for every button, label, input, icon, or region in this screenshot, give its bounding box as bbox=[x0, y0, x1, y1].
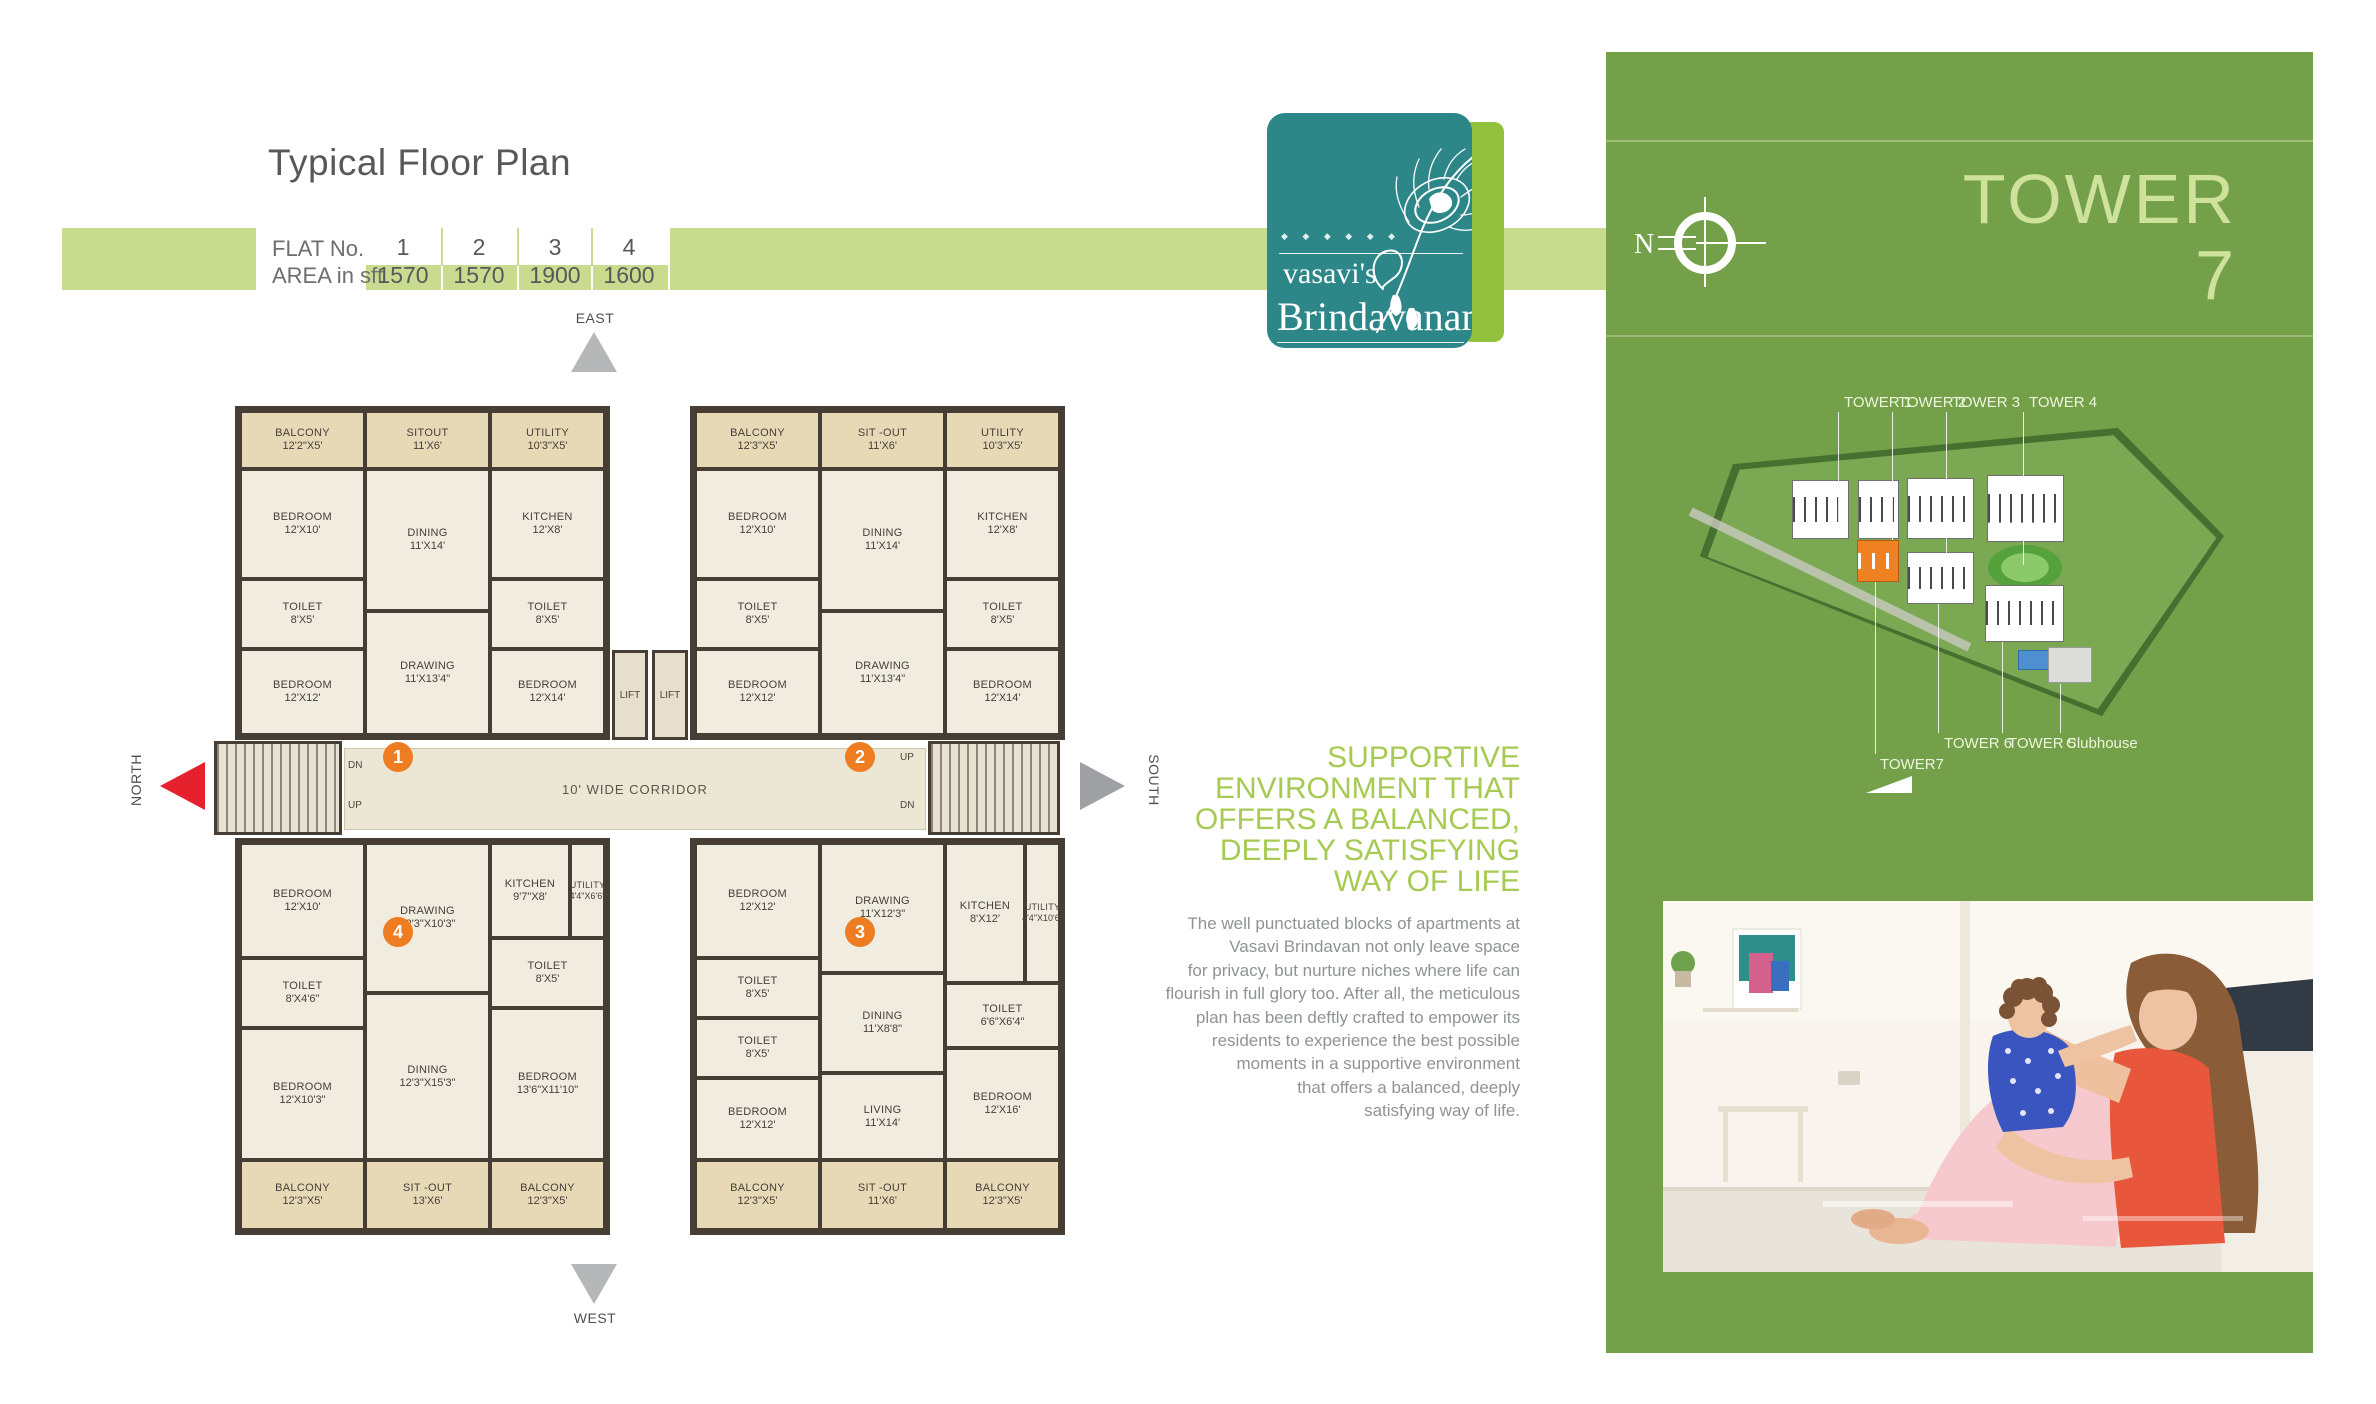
body-line: Vasavi Brindavan not only leave space bbox=[1100, 935, 1520, 958]
room-name: KITCHEN bbox=[960, 900, 1010, 913]
room-dims: 11'X6' bbox=[868, 1195, 897, 1208]
marker-number: 2 bbox=[855, 747, 865, 768]
room-name: BEDROOM bbox=[973, 1091, 1032, 1104]
headline-line: DEEPLY SATISFYING bbox=[1120, 835, 1520, 866]
room-dims: 12'3"X5' bbox=[738, 1195, 778, 1208]
tower-4-building bbox=[1987, 475, 2064, 542]
room-utility: UTILITY10'3"X5' bbox=[945, 411, 1060, 469]
room-dims: 12'X10' bbox=[284, 901, 320, 914]
room-bedroom: BEDROOM13'6"X11'10" bbox=[490, 1008, 605, 1160]
room-dims: 8'X5' bbox=[991, 614, 1015, 627]
room-bedroom: BEDROOM12'X10' bbox=[240, 843, 365, 958]
room-dims: 12'X10'3" bbox=[279, 1094, 325, 1107]
room-bedroom: BEDROOM12'X10' bbox=[695, 469, 820, 579]
room-bedroom: BEDROOM12'X10'3" bbox=[240, 1028, 365, 1160]
tower-number: 7 bbox=[2195, 240, 2237, 310]
stair-dn-label: DN bbox=[348, 760, 362, 771]
leader-line bbox=[1892, 412, 1893, 540]
room-dining: DINING11'X14' bbox=[365, 469, 490, 611]
body-line: for privacy, but nurture niches where li… bbox=[1100, 959, 1520, 982]
room-name: LIVING bbox=[864, 1104, 902, 1117]
marker-number: 1 bbox=[393, 747, 403, 768]
room-dims: 11'X14' bbox=[410, 540, 445, 553]
room-drawing: DRAWING12'3"X10'3" bbox=[365, 843, 490, 993]
room-dims: 11'X13'4" bbox=[405, 673, 450, 686]
room-balcony: BALCONY12'2"X5' bbox=[240, 411, 365, 469]
north-arrow-icon bbox=[160, 762, 205, 810]
flat-no-cell: 3 bbox=[518, 234, 592, 261]
room-dims: 12'X8' bbox=[533, 524, 563, 537]
room-name: UTILITY bbox=[526, 427, 569, 440]
room-toilet: TOILET6'6"X6'4" bbox=[945, 983, 1060, 1048]
leader-line bbox=[1838, 412, 1839, 530]
room-name: BEDROOM bbox=[728, 511, 787, 524]
room-name: KITCHEN bbox=[505, 878, 555, 891]
room-name: DINING bbox=[862, 527, 902, 540]
room-dims: 12'X12' bbox=[739, 692, 775, 705]
room-sitout: SIT -OUT13'X6' bbox=[365, 1160, 490, 1230]
north-compass-icon: N bbox=[1626, 187, 1796, 302]
room-bedroom: BEDROOM12'X12' bbox=[695, 843, 820, 958]
body-line: residents to experience the best possibl… bbox=[1100, 1029, 1520, 1052]
room-dims: 11'X8'8" bbox=[863, 1023, 902, 1036]
brand-logo: ◆ ◆ ◆ ◆ ◆ ◆ vasavi's Brindavanam bbox=[1267, 113, 1472, 348]
leader-line bbox=[1938, 604, 1939, 733]
room-name: TOILET bbox=[527, 601, 567, 614]
room-name: UTILITY bbox=[981, 427, 1024, 440]
room-name: BALCONY bbox=[520, 1182, 575, 1195]
room-name: DINING bbox=[862, 1010, 902, 1023]
logo-underline bbox=[1277, 342, 1464, 343]
room-sitout: SITOUT11'X6' bbox=[365, 411, 490, 469]
leader-line bbox=[2002, 642, 2003, 733]
tower-title: TOWER bbox=[1963, 164, 2237, 234]
room-dims: 12'X10' bbox=[284, 524, 320, 537]
room-dims: 13'X6' bbox=[413, 1195, 443, 1208]
room-dining: DINING11'X14' bbox=[820, 469, 945, 611]
room-dims: 8'X5' bbox=[746, 1048, 770, 1061]
flat-area-cell: 1600 bbox=[592, 262, 666, 289]
room-dims: 12'X16' bbox=[984, 1104, 1020, 1117]
room-bedroom: BEDROOM12'X12' bbox=[240, 649, 365, 735]
headline-line: OFFERS A BALANCED, bbox=[1120, 804, 1520, 835]
room-toilet: TOILET8'X5' bbox=[945, 579, 1060, 649]
room-dims: 8'X5' bbox=[291, 614, 315, 627]
room-dims: 4'4"X10'6" bbox=[1022, 913, 1063, 924]
room-toilet: TOILET8'X5' bbox=[695, 579, 820, 649]
room-drawing: DRAWING11'X13'4" bbox=[820, 611, 945, 735]
room-balcony: BALCONY12'3"X5' bbox=[695, 1160, 820, 1230]
room-name: DRAWING bbox=[400, 660, 455, 673]
brochure-page: Typical Floor Plan FLAT No. AREA in sft … bbox=[0, 0, 2376, 1404]
room-dims: 12'X10' bbox=[739, 524, 775, 537]
flat-marker-3: 3 bbox=[845, 917, 875, 947]
room-name: SITOUT bbox=[407, 427, 449, 440]
logo-ornament: ◆ ◆ ◆ ◆ ◆ ◆ bbox=[1281, 231, 1401, 242]
brand-name-top: vasavi's bbox=[1283, 257, 1377, 291]
room-dims: 12'X12' bbox=[739, 901, 775, 914]
south-arrow-icon bbox=[1080, 762, 1125, 810]
section-headline: SUPPORTIVE ENVIRONMENT THAT OFFERS A BAL… bbox=[1120, 742, 1520, 897]
room-kitchen: KITCHEN9'7"X8' bbox=[490, 843, 570, 938]
leader-line bbox=[2023, 412, 2024, 565]
room-dims: 9'7"X8' bbox=[513, 891, 547, 904]
leader-line bbox=[1875, 582, 1876, 754]
body-line: The well punctuated blocks of apartments… bbox=[1100, 912, 1520, 935]
room-toilet: TOILET8'X5' bbox=[695, 1018, 820, 1078]
room-name: SIT -OUT bbox=[403, 1182, 452, 1195]
room-name: BEDROOM bbox=[728, 679, 787, 692]
room-dims: 8'X4'6" bbox=[286, 993, 320, 1006]
room-name: SIT -OUT bbox=[858, 1182, 907, 1195]
room-name: BALCONY bbox=[730, 427, 785, 440]
room-dims: 12'X12' bbox=[739, 1119, 775, 1132]
logo-divider bbox=[1279, 253, 1463, 254]
room-balcony: BALCONY12'3"X5' bbox=[490, 1160, 605, 1230]
room-name: TOILET bbox=[982, 601, 1022, 614]
west-label: WEST bbox=[560, 1310, 630, 1326]
room-name: BEDROOM bbox=[728, 1106, 787, 1119]
room-sitout: SIT -OUT11'X6' bbox=[820, 1160, 945, 1230]
room-dims: 12'2"X5' bbox=[283, 440, 323, 453]
tower-6-building bbox=[1907, 552, 1974, 604]
flat-2-plan: BALCONY12'3"X5' SIT -OUT11'X6' UTILITY10… bbox=[690, 406, 1065, 740]
room-toilet: TOILET8'X5' bbox=[240, 579, 365, 649]
clubhouse-building bbox=[2048, 647, 2092, 683]
room-name: BEDROOM bbox=[518, 1071, 577, 1084]
site-label-clubhouse: Clubhouse bbox=[2066, 735, 2138, 752]
room-bedroom: BEDROOM12'X10' bbox=[240, 469, 365, 579]
room-dims: 11'X14' bbox=[865, 540, 900, 553]
room-name: DRAWING bbox=[400, 905, 455, 918]
body-line: plan has been deftly crafted to empower … bbox=[1100, 1006, 1520, 1029]
room-dims: 11'X6' bbox=[868, 440, 897, 453]
room-name: BEDROOM bbox=[273, 679, 332, 692]
room-balcony: BALCONY12'3"X5' bbox=[945, 1160, 1060, 1230]
lifestyle-photo bbox=[1663, 901, 2313, 1272]
flat-marker-4: 4 bbox=[383, 917, 413, 947]
tower-1-building bbox=[1792, 480, 1849, 539]
room-dims: 8'X5' bbox=[536, 973, 560, 986]
room-toilet: TOILET8'X5' bbox=[695, 958, 820, 1018]
site-label-tower-7: TOWER7 bbox=[1880, 756, 1944, 773]
lift-block: LIFT LIFT bbox=[612, 650, 688, 740]
room-dims: 12'3"X5' bbox=[283, 1195, 323, 1208]
room-bedroom: BEDROOM12'X12' bbox=[695, 1078, 820, 1160]
room-name: DRAWING bbox=[855, 660, 910, 673]
leader-line bbox=[2060, 684, 2061, 733]
marker-number: 4 bbox=[393, 922, 403, 943]
room-dims: 12'X14' bbox=[529, 692, 565, 705]
room-dining: DINING12'3"X15'3" bbox=[365, 993, 490, 1160]
room-name: DRAWING bbox=[855, 895, 910, 908]
room-bedroom: BEDROOM12'X12' bbox=[695, 649, 820, 735]
room-name: TOILET bbox=[737, 975, 777, 988]
room-dims: 8'X12' bbox=[970, 913, 1000, 926]
stairs-right bbox=[928, 741, 1060, 835]
headline-line: WAY OF LIFE bbox=[1120, 866, 1520, 897]
room-name: BEDROOM bbox=[273, 511, 332, 524]
room-name: DINING bbox=[407, 1064, 447, 1077]
site-plan bbox=[1690, 415, 2240, 730]
stair-up-label: UP bbox=[900, 752, 914, 763]
room-bedroom: BEDROOM12'X14' bbox=[945, 649, 1060, 735]
room-kitchen: KITCHEN12'X8' bbox=[490, 469, 605, 579]
room-name: BEDROOM bbox=[518, 679, 577, 692]
room-dims: 11'X6' bbox=[413, 440, 442, 453]
flat-area-cell: 1570 bbox=[366, 262, 440, 289]
room-dims: 11'X13'4" bbox=[860, 673, 905, 686]
corridor: 10' WIDE CORRIDOR bbox=[344, 748, 926, 830]
room-kitchen: KITCHEN8'X12' bbox=[945, 843, 1025, 983]
room-name: TOILET bbox=[527, 960, 567, 973]
east-label: EAST bbox=[560, 310, 630, 326]
room-dims: 4'4"X6'6" bbox=[570, 891, 606, 902]
body-line: flourish in full glory too. After all, t… bbox=[1100, 982, 1520, 1005]
body-line: satisfying way of life. bbox=[1100, 1099, 1520, 1122]
room-drawing: DRAWING11'X13'4" bbox=[365, 611, 490, 735]
body-line: moments in a supportive environment bbox=[1100, 1052, 1520, 1075]
room-name: DINING bbox=[407, 527, 447, 540]
central-lawn bbox=[1988, 545, 2062, 590]
tower-3-building bbox=[1907, 478, 1974, 539]
south-label: SOUTH bbox=[1146, 754, 1162, 806]
room-name: TOILET bbox=[282, 601, 322, 614]
room-dims: 8'X5' bbox=[746, 614, 770, 627]
stair-dn-label: DN bbox=[900, 800, 914, 811]
flat-area-cell: 1570 bbox=[442, 262, 516, 289]
tower-7-building-highlight bbox=[1857, 540, 1899, 582]
room-name: BALCONY bbox=[275, 1182, 330, 1195]
room-toilet: TOILET8'X5' bbox=[490, 579, 605, 649]
headline-line: SUPPORTIVE bbox=[1120, 742, 1520, 773]
room-dims: 12'3"X15'3" bbox=[399, 1077, 455, 1090]
stairs-left bbox=[214, 741, 342, 835]
room-dims: 12'X8' bbox=[988, 524, 1018, 537]
room-dims: 11'X14' bbox=[865, 1117, 900, 1130]
room-name: UTILITY bbox=[570, 880, 606, 891]
flat-marker-1: 1 bbox=[383, 742, 413, 772]
room-name: TOILET bbox=[282, 980, 322, 993]
room-dims: 12'3"X5' bbox=[528, 1195, 568, 1208]
section-body: The well punctuated blocks of apartments… bbox=[1100, 912, 1520, 1123]
room-name: BEDROOM bbox=[273, 888, 332, 901]
room-dims: 12'X12' bbox=[284, 692, 320, 705]
room-balcony: BALCONY12'3"X5' bbox=[240, 1160, 365, 1230]
room-kitchen: KITCHEN12'X8' bbox=[945, 469, 1060, 579]
room-bedroom: BEDROOM12'X16' bbox=[945, 1048, 1060, 1160]
flat-no-cell: 2 bbox=[442, 234, 516, 261]
flat-marker-2: 2 bbox=[845, 742, 875, 772]
table-divider bbox=[668, 228, 670, 290]
lift-label: LIFT bbox=[620, 690, 641, 701]
room-dims: 12'3"X5' bbox=[983, 1195, 1023, 1208]
corridor-label: 10' WIDE CORRIDOR bbox=[562, 782, 708, 797]
flat-no-cell: 1 bbox=[366, 234, 440, 261]
table-row1-label: FLAT No. bbox=[272, 236, 364, 262]
site-label-tower-4: TOWER 4 bbox=[2029, 394, 2097, 411]
flat-area-cell: 1900 bbox=[518, 262, 592, 289]
room-dims: 12'3"X5' bbox=[738, 440, 778, 453]
room-utility: UTILITY4'4"X6'6" bbox=[570, 843, 605, 938]
room-utility: UTILITY10'3"X5' bbox=[490, 411, 605, 469]
panel-divider bbox=[1606, 335, 2313, 337]
headline-line: ENVIRONMENT THAT bbox=[1120, 773, 1520, 804]
room-name: BEDROOM bbox=[273, 1081, 332, 1094]
room-name: TOILET bbox=[737, 601, 777, 614]
brand-name-bottom: Brindavanam bbox=[1277, 293, 1472, 340]
tower-5-building bbox=[1985, 585, 2064, 642]
lift-label: LIFT bbox=[660, 690, 681, 701]
room-dims: 10'3"X5' bbox=[528, 440, 568, 453]
compass-n-letter: N bbox=[1634, 229, 1654, 260]
stair-up-label: UP bbox=[348, 800, 362, 811]
page-title: Typical Floor Plan bbox=[268, 142, 571, 184]
mother-child-illustration bbox=[1663, 901, 2313, 1272]
room-bedroom: BEDROOM12'X14' bbox=[490, 649, 605, 735]
flat-no-cell: 4 bbox=[592, 234, 666, 261]
room-name: BEDROOM bbox=[973, 679, 1032, 692]
room-living: LIVING11'X14' bbox=[820, 1073, 945, 1160]
room-sitout: SIT -OUT11'X6' bbox=[820, 411, 945, 469]
body-line: that offers a balanced, deeply bbox=[1100, 1076, 1520, 1099]
swimming-pool bbox=[2018, 650, 2050, 670]
room-dims: 10'3"X5' bbox=[983, 440, 1023, 453]
panel-divider bbox=[1606, 140, 2313, 142]
room-drawing: DRAWING11'X12'3" bbox=[820, 843, 945, 973]
lift-1: LIFT bbox=[612, 650, 648, 740]
room-name: BALCONY bbox=[975, 1182, 1030, 1195]
marker-number: 3 bbox=[855, 922, 865, 943]
room-name: BALCONY bbox=[275, 427, 330, 440]
room-name: BEDROOM bbox=[728, 888, 787, 901]
east-arrow-icon bbox=[571, 332, 617, 372]
flat-3-plan: BEDROOM12'X12' DRAWING11'X12'3" KITCHEN8… bbox=[690, 838, 1065, 1235]
room-name: SIT -OUT bbox=[858, 427, 907, 440]
room-balcony: BALCONY12'3"X5' bbox=[695, 411, 820, 469]
room-dining: DINING11'X8'8" bbox=[820, 973, 945, 1073]
room-name: BALCONY bbox=[730, 1182, 785, 1195]
north-label: NORTH bbox=[128, 754, 144, 806]
flat-4-plan: BEDROOM12'X10' DRAWING12'3"X10'3" KITCHE… bbox=[235, 838, 610, 1235]
room-toilet: TOILET8'X4'6" bbox=[240, 958, 365, 1028]
tower-7-pointer-icon bbox=[1866, 776, 1912, 793]
room-dims: 12'X14' bbox=[984, 692, 1020, 705]
room-name: KITCHEN bbox=[977, 511, 1027, 524]
room-name: KITCHEN bbox=[522, 511, 572, 524]
site-label-tower-6: TOWER 6 bbox=[1944, 735, 2012, 752]
leader-line bbox=[1946, 412, 1947, 555]
room-toilet: TOILET8'X5' bbox=[490, 938, 605, 1008]
site-label-tower-3: TOWER 3 bbox=[1952, 394, 2020, 411]
room-dims: 6'6"X6'4" bbox=[981, 1016, 1025, 1029]
room-utility: UTILITY4'4"X10'6" bbox=[1025, 843, 1060, 983]
room-name: TOILET bbox=[737, 1035, 777, 1048]
room-dims: 8'X5' bbox=[746, 988, 770, 1001]
lift-2: LIFT bbox=[652, 650, 688, 740]
flat-1-plan: BALCONY12'2"X5' SITOUT11'X6' UTILITY10'3… bbox=[235, 406, 610, 740]
room-dims: 8'X5' bbox=[536, 614, 560, 627]
room-name: TOILET bbox=[982, 1003, 1022, 1016]
room-dims: 13'6"X11'10" bbox=[517, 1084, 578, 1097]
west-arrow-icon bbox=[571, 1264, 617, 1304]
tower-panel: N TOWER 7 TOWER 1 TOWER 2 TOWER 3 TOWER … bbox=[1606, 52, 2313, 1353]
room-name: UTILITY bbox=[1025, 902, 1061, 913]
